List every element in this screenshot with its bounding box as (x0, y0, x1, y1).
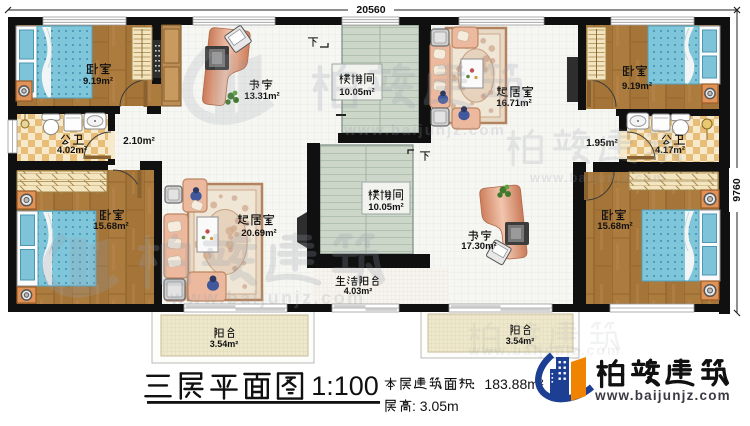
svg-text:15.68m²: 15.68m² (597, 221, 632, 232)
svg-text:9760: 9760 (731, 178, 743, 202)
svg-text:1:100: 1:100 (311, 371, 379, 401)
svg-text:2.10m²: 2.10m² (123, 136, 155, 147)
svg-text::: : (471, 377, 475, 392)
svg-text:9.19m²: 9.19m² (83, 76, 113, 87)
svg-text:www.baijunjz.com: www.baijunjz.com (529, 170, 666, 185)
svg-text:10.05m²: 10.05m² (368, 202, 403, 213)
svg-text:17.30m²: 17.30m² (461, 241, 496, 252)
svg-text:9.19m²: 9.19m² (622, 81, 652, 92)
svg-text:183.88m²: 183.88m² (484, 376, 543, 392)
svg-text:20560: 20560 (356, 4, 385, 16)
svg-text:15.68m²: 15.68m² (93, 221, 128, 232)
svg-text:4.02m²: 4.02m² (57, 145, 87, 156)
svg-text:www.baijunjz.com: www.baijunjz.com (169, 288, 365, 308)
svg-text:: 3.05m: : 3.05m (412, 398, 459, 414)
svg-text:www.baijunjz.com: www.baijunjz.com (468, 342, 622, 358)
svg-text:3.54m²: 3.54m² (210, 339, 239, 349)
svg-text:www.baijunjz.com: www.baijunjz.com (594, 388, 731, 403)
svg-text:www.baijunjz.com: www.baijunjz.com (343, 122, 505, 139)
